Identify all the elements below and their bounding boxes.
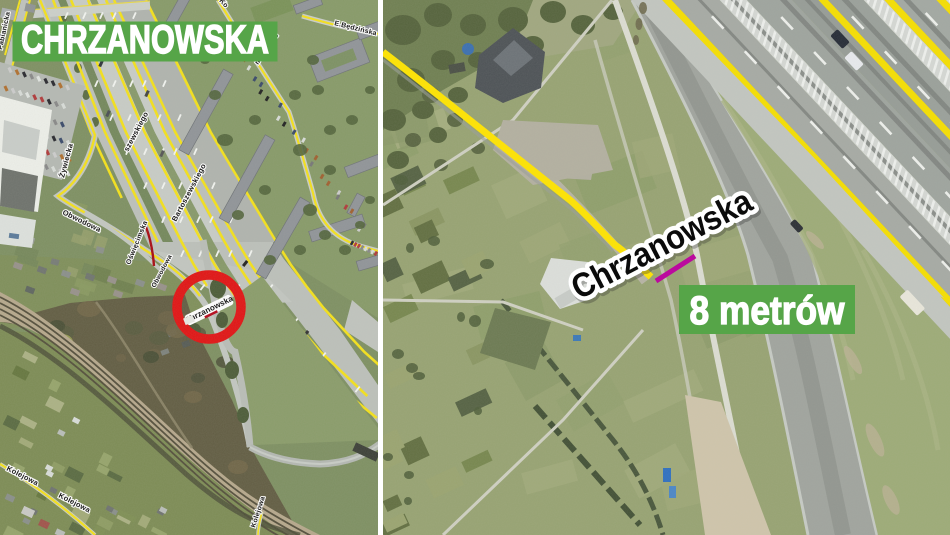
svg-text:8 metrów: 8 metrów (690, 289, 846, 333)
svg-text:CHRZANOWSKA: CHRZANOWSKA (21, 18, 269, 62)
